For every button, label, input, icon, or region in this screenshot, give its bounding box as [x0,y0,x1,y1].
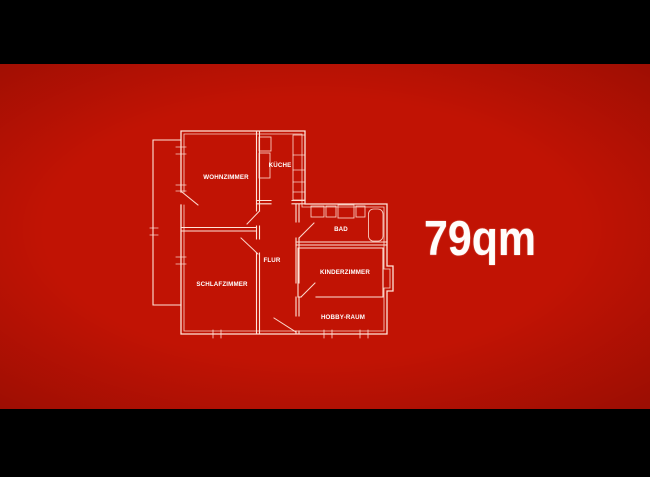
room-label-wohnzimmer: WOHNZIMMER [203,174,249,181]
floor-plan: WOHNZIMMER KÜCHE BAD FLUR SCHLAFZIMMER K… [0,0,650,477]
letterbox-bottom [0,409,650,477]
video-frame: WOHNZIMMER KÜCHE BAD FLUR SCHLAFZIMMER K… [0,0,650,477]
bath-sink [311,206,324,217]
kitchen-unit-dividers [293,155,305,192]
room-label-schlafzimmer: SCHLAFZIMMER [196,281,248,288]
schlafzimmer-window-ticks [176,257,221,338]
wohnzimmer-door [247,211,260,224]
room-label-hobbyraum: HOBBY-RAUM [321,314,365,321]
balcony-railing-ticks [150,228,158,235]
letterbox-top [0,0,650,64]
balcony-outline [153,140,181,305]
schlafzimmer-door [241,238,258,254]
area-size-text: 79qm [424,215,536,264]
room-label-kinderzimmer: KINDERZIMMER [320,269,370,276]
kitchen-bottom-wall [257,201,306,204]
room-label-kueche: KÜCHE [269,162,292,169]
bad-door [299,223,314,238]
kitchen-counter-top [259,137,271,151]
balcony [150,140,181,305]
room-label-flur: FLUR [263,257,280,264]
balcony-door [182,192,198,205]
bath-toilet [326,206,336,217]
bathroom-fixtures [311,205,383,241]
bathtub [369,209,384,241]
bath-bottom-wall [296,242,387,245]
entrance-door [274,318,296,332]
bath-fixture-small [356,206,365,217]
kitchen-unit-band [293,135,305,200]
wohn-schlaf-wall [181,228,257,232]
room-label-bad: BAD [334,226,348,233]
kinderzimmer-door [301,283,315,297]
door-swings [182,192,315,332]
